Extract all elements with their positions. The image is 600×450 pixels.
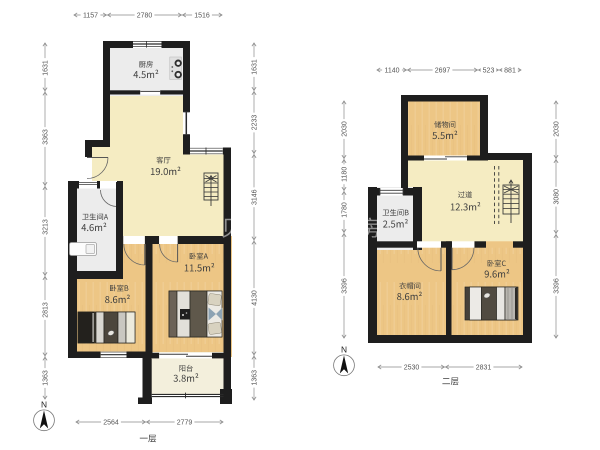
svg-text:3396: 3396 (553, 278, 560, 294)
svg-text:2233: 2233 (251, 115, 258, 131)
svg-text:3363: 3363 (42, 129, 49, 145)
svg-text:N: N (41, 400, 47, 410)
svg-text:2530: 2530 (404, 364, 420, 371)
svg-text:1780: 1780 (341, 202, 348, 218)
svg-text:881: 881 (504, 67, 516, 74)
svg-text:1363: 1363 (251, 370, 258, 386)
svg-text:1631: 1631 (42, 60, 49, 76)
svg-text:2780: 2780 (137, 12, 153, 19)
svg-text:2813: 2813 (42, 302, 49, 318)
svg-text:3396: 3396 (341, 278, 348, 294)
svg-text:1180: 1180 (341, 167, 348, 182)
svg-text:1157: 1157 (83, 12, 98, 19)
svg-text:4130: 4130 (251, 290, 258, 306)
svg-text:2779: 2779 (177, 419, 193, 426)
svg-text:1516: 1516 (194, 12, 210, 19)
svg-text:523: 523 (483, 67, 495, 74)
svg-text:2030: 2030 (341, 121, 348, 137)
svg-text:N: N (341, 345, 347, 355)
svg-text:1363: 1363 (42, 370, 49, 386)
svg-text:2030: 2030 (553, 121, 560, 137)
svg-text:3213: 3213 (42, 219, 49, 235)
svg-text:1631: 1631 (251, 59, 258, 75)
svg-text:2697: 2697 (435, 67, 451, 74)
svg-text:3080: 3080 (553, 189, 560, 205)
svg-text:3146: 3146 (251, 189, 258, 205)
svg-text:2564: 2564 (103, 419, 119, 426)
svg-text:2831: 2831 (476, 364, 492, 371)
svg-text:1140: 1140 (384, 67, 399, 74)
